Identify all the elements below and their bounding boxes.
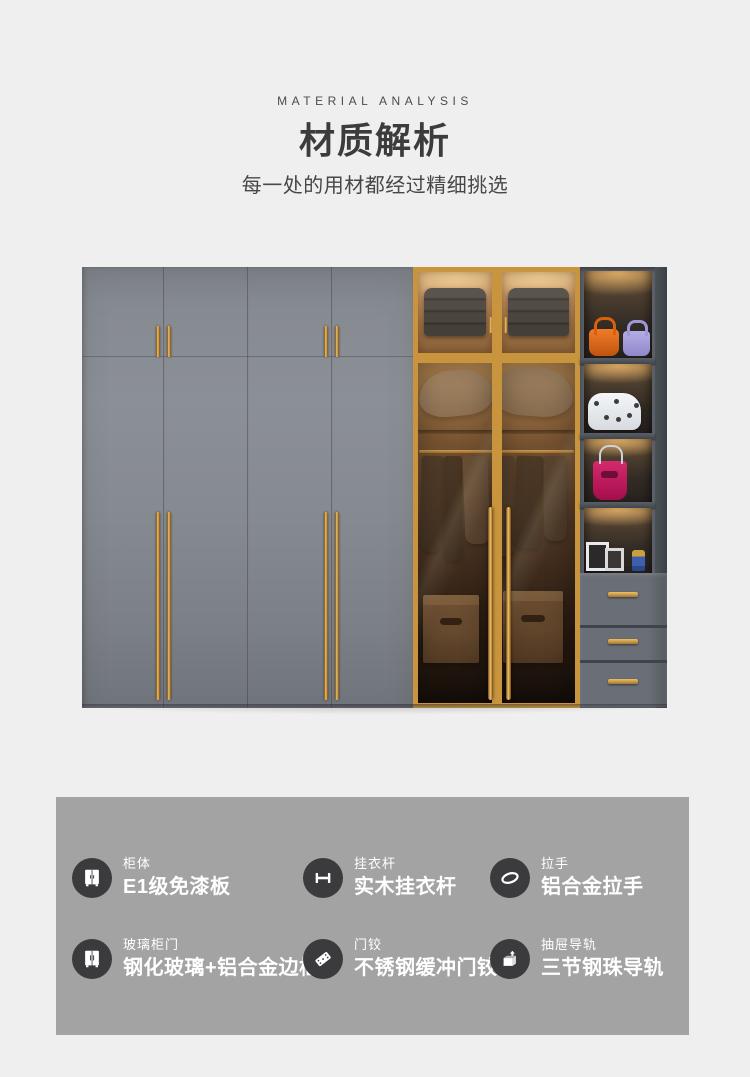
- handbag-lavender: [623, 331, 650, 356]
- drawer-handle: [608, 679, 638, 684]
- handbag-orange: [589, 329, 619, 356]
- feature-label: 挂衣杆: [354, 856, 457, 872]
- feature-value: E1级免漆板: [123, 875, 230, 899]
- feature-pull-handle: 拉手 铝合金拉手: [490, 856, 644, 899]
- feature-hanging-rod: 挂衣杆 实木挂衣杆: [303, 856, 457, 899]
- feature-value: 三节钢珠导轨: [541, 956, 664, 980]
- drawer-divider: [580, 625, 667, 628]
- feature-value: 实木挂衣杆: [354, 875, 457, 899]
- handbag-white: [588, 393, 641, 430]
- shelf-cell: [584, 508, 652, 573]
- gray-door-section: [82, 267, 413, 708]
- feature-value: 钢化玻璃+铝合金边框: [123, 956, 320, 980]
- section-eyebrow: MATERIAL ANALYSIS: [0, 94, 750, 108]
- gold-handle: [167, 326, 171, 357]
- feature-value: 不锈钢缓冲门铰: [354, 956, 498, 980]
- door-seam-horizontal: [82, 356, 413, 358]
- door-seam: [163, 267, 165, 708]
- glass-top-cabinet: [413, 267, 497, 358]
- gold-handle-mini: [489, 317, 492, 333]
- gold-handle: [335, 326, 339, 357]
- shelf-cell: [584, 364, 652, 433]
- material-analysis-page: MATERIAL ANALYSIS 材质解析 每一处的用材都经过精细挑选: [0, 0, 750, 1077]
- feature-drawer-slide: 抽屉导轨 三节钢珠导轨: [490, 937, 664, 980]
- feature-label: 门铰: [354, 937, 498, 953]
- gold-handle-long: [335, 512, 339, 700]
- drawer-handle: [608, 592, 638, 597]
- wardrobe-icon: [72, 858, 112, 898]
- gold-handle: [324, 326, 328, 357]
- features-panel: 柜体 E1级免漆板 挂衣杆 实木挂衣杆 拉手 铝合金拉手: [56, 797, 689, 1035]
- hanging-rod-icon: [303, 858, 343, 898]
- decor-jar: [632, 550, 645, 571]
- hinge-icon: [303, 939, 343, 979]
- drawer-slide-icon: [490, 939, 530, 979]
- open-shelf-unit: [580, 267, 667, 708]
- feature-label: 抽屉导轨: [541, 937, 664, 953]
- drawer-stack: [580, 573, 667, 707]
- gold-handle-long: [324, 512, 328, 700]
- feature-label: 拉手: [541, 856, 644, 872]
- furniture-base-shadow: [82, 704, 667, 708]
- gold-handle-mini: [504, 317, 507, 333]
- gold-handle-long: [506, 507, 511, 700]
- door-seam: [331, 267, 333, 708]
- pull-handle-icon: [490, 858, 530, 898]
- shelf-cell: [584, 271, 652, 358]
- feature-label: 柜体: [123, 856, 230, 872]
- gold-handle-long: [167, 512, 171, 700]
- wardrobe-product-photo: [82, 267, 667, 708]
- folded-blanket: [424, 288, 486, 336]
- gold-handle: [156, 326, 160, 357]
- feature-value: 铝合金拉手: [541, 875, 644, 899]
- feature-glass-door: 玻璃柜门 钢化玻璃+铝合金边框: [72, 937, 320, 980]
- glass-top-cabinet: [497, 267, 580, 358]
- drawer-handle: [608, 639, 638, 644]
- gold-handle-long: [488, 507, 493, 700]
- glass-door: [413, 358, 497, 708]
- shelf-cell: [584, 439, 652, 502]
- gold-handle-long: [156, 512, 160, 700]
- photo-frame: [605, 548, 624, 571]
- door-seam: [247, 267, 249, 708]
- feature-label: 玻璃柜门: [123, 937, 320, 953]
- glass-door-icon: [72, 939, 112, 979]
- drawer-divider: [580, 660, 667, 663]
- section-subtitle: 每一处的用材都经过精细挑选: [0, 169, 750, 198]
- handbag-magenta: [593, 461, 627, 500]
- folded-blanket: [508, 288, 569, 336]
- section-title: 材质解析: [0, 112, 750, 164]
- feature-hinge: 门铰 不锈钢缓冲门铰: [303, 937, 498, 980]
- feature-cabinet: 柜体 E1级免漆板: [72, 856, 230, 899]
